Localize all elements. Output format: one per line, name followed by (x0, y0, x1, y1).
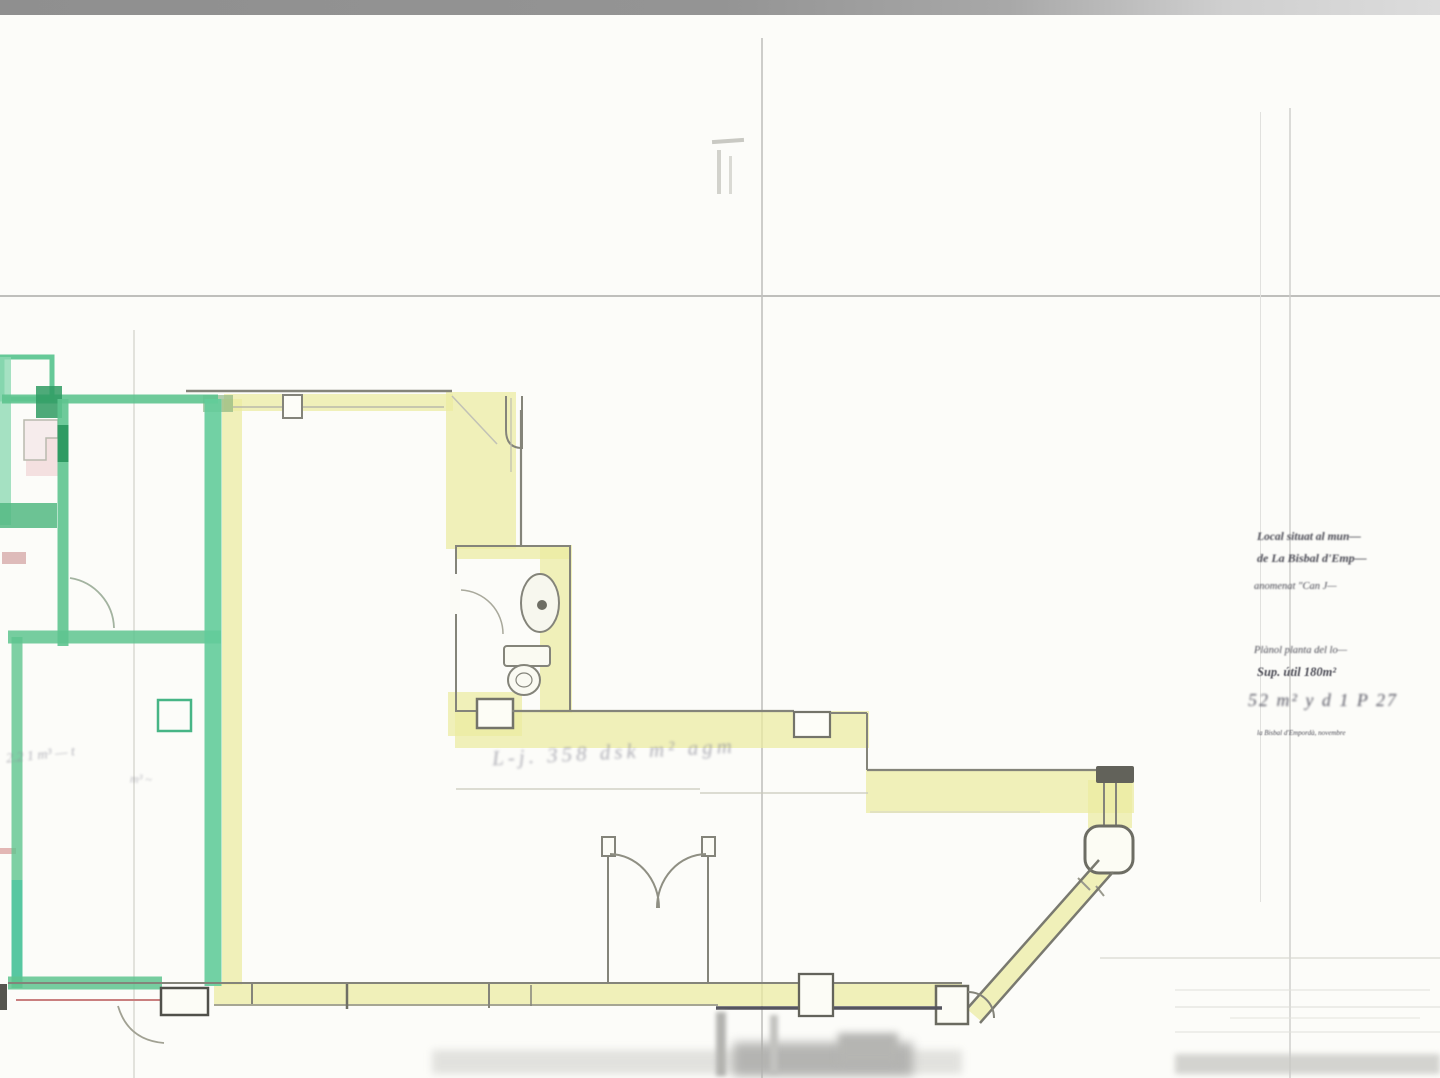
left-edge-dark-tick (0, 984, 7, 1010)
scan-streak-1 (716, 1012, 726, 1076)
yellow-bottom-wall (214, 983, 962, 1006)
green-highlight-room (0, 357, 221, 988)
note-line-3: anomenat "Can J— (1254, 581, 1337, 592)
diagonal-wall-inner (980, 872, 1113, 1023)
scan-smudge-small (838, 1033, 898, 1063)
note-line-5-surface: Sup. útil 180m² (1257, 665, 1336, 680)
yellow-left-partition (222, 399, 242, 985)
floor-plan-drawing (0, 0, 1440, 1078)
exterior-door-arc (118, 1006, 164, 1043)
diagonal-corner-post (936, 986, 968, 1024)
bottom-pillar-mid (799, 974, 833, 1016)
bottom-pillar-left (161, 988, 208, 1015)
note-line-4: Plànol planta del lo— (1254, 645, 1347, 656)
green-room-handwritten-scrawl: m³ ~ (130, 771, 153, 787)
bathroom-door-gap (450, 574, 460, 614)
diagonal-wall-outer (966, 860, 1099, 1010)
green-inner-column (158, 700, 191, 731)
wall-end-cap (1096, 766, 1134, 783)
closet-step-walls (24, 420, 58, 460)
yellow-column-area (1088, 780, 1132, 828)
door-arc-green-room (70, 578, 114, 628)
scan-streak-2 (770, 1015, 778, 1073)
green-left-band (0, 357, 11, 525)
note-line-6-handwritten: 52 m² y d 1 P 27 (1248, 690, 1398, 711)
door-swing-left (610, 854, 659, 908)
note-line-1: Local situat al mun— (1257, 531, 1361, 543)
note-line-2: de La Bisbal d'Emp— (1257, 551, 1367, 566)
scan-smudge-right (1175, 1054, 1440, 1074)
bathroom-door-arc (461, 590, 503, 634)
toilet-bowl (508, 665, 540, 695)
pillar-below-bathroom (477, 699, 513, 728)
corridor-pillar (794, 712, 830, 737)
note-line-7-signature: la Bisbal d'Empordà, novembre (1257, 729, 1345, 737)
yellow-top-wall (224, 394, 453, 411)
top-wall-pillar (283, 395, 302, 418)
door-swing-right (657, 854, 706, 908)
yellow-highlight-walls (203, 392, 1134, 1022)
door-jamb-cap-left (602, 837, 615, 856)
green-hatch-block (0, 503, 57, 528)
yellow-diagonal-wall (968, 858, 1114, 1022)
toilet-tank (504, 646, 550, 666)
sink-drain (537, 600, 547, 610)
scanned-floor-plan-page: L-j. 358 dsk m² agm 2.2 1 m³ — t m³ ~ Lo… (0, 0, 1440, 1078)
